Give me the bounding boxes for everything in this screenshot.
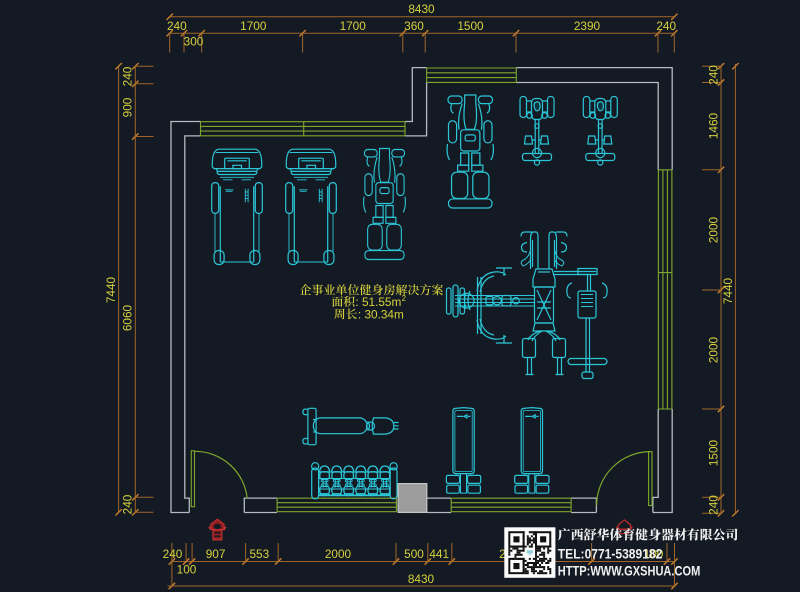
- svg-text:: 30.34m: : 30.34m: [358, 307, 404, 321]
- svg-text:8430: 8430: [408, 572, 435, 586]
- svg-text:360: 360: [404, 19, 424, 33]
- svg-text:7440: 7440: [721, 277, 735, 304]
- svg-text:900: 900: [121, 97, 135, 117]
- svg-text:240: 240: [163, 547, 183, 561]
- svg-text:1500: 1500: [457, 19, 484, 33]
- svg-text:2000: 2000: [325, 547, 352, 561]
- svg-text:6060: 6060: [121, 304, 135, 331]
- svg-text:100: 100: [177, 563, 197, 577]
- svg-text:240: 240: [167, 19, 187, 33]
- svg-text:7440: 7440: [104, 276, 118, 303]
- svg-text:907: 907: [206, 547, 226, 561]
- svg-text:240: 240: [707, 65, 721, 85]
- svg-text:2000: 2000: [707, 336, 721, 363]
- svg-text:240: 240: [656, 19, 676, 33]
- svg-text:441: 441: [429, 547, 449, 561]
- svg-text:HTTP:WWW.GXSHUA.COM: HTTP:WWW.GXSHUA.COM: [558, 564, 701, 579]
- svg-text:2: 2: [402, 294, 406, 303]
- svg-text:240: 240: [121, 66, 135, 86]
- svg-text:8430: 8430: [408, 2, 435, 16]
- svg-text:1700: 1700: [240, 19, 267, 33]
- svg-text:1500: 1500: [707, 439, 721, 466]
- svg-text:500: 500: [404, 547, 424, 561]
- svg-text:TEL:0771-5389182: TEL:0771-5389182: [558, 546, 663, 561]
- svg-text:2000: 2000: [707, 216, 721, 243]
- svg-text:300: 300: [184, 35, 204, 49]
- svg-text:2390: 2390: [574, 19, 601, 33]
- svg-text:240: 240: [121, 494, 135, 514]
- svg-text:1460: 1460: [707, 112, 721, 139]
- svg-text:553: 553: [249, 547, 269, 561]
- svg-text:1700: 1700: [340, 19, 367, 33]
- svg-text:240: 240: [707, 495, 721, 515]
